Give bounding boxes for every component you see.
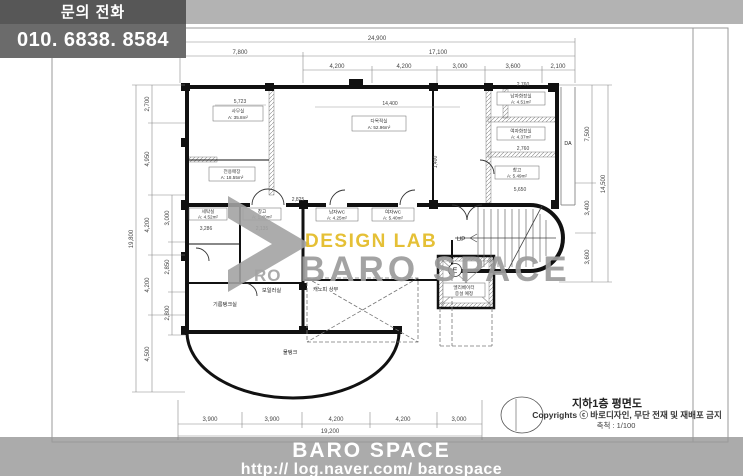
svg-text:2,825: 2,825 [292, 197, 305, 203]
contact-box: 문의 전화 010. 6838. 8584 [0, 0, 186, 58]
svg-text:3,286: 3,286 [200, 226, 213, 232]
oil-tank-label: 기름탱크실 [213, 300, 237, 308]
svg-text:4,200: 4,200 [145, 217, 151, 233]
svg-text:A: 4.25m²: A: 4.25m² [327, 216, 347, 221]
svg-text:4,200: 4,200 [329, 64, 345, 70]
svg-text:7,500: 7,500 [585, 126, 591, 142]
room-label: 남자화장실 A: 4.51m² [497, 92, 545, 105]
svg-text:4,200: 4,200 [145, 277, 151, 293]
up-label: UP [456, 236, 465, 243]
svg-text:24,900: 24,900 [368, 36, 387, 42]
svg-text:1,400: 1,400 [433, 156, 439, 169]
svg-text:5,650: 5,650 [514, 187, 527, 193]
svg-text:A: 5.40m²: A: 5.40m² [383, 216, 403, 221]
room-label: 여자WC A: 5.40m² [372, 208, 414, 221]
blog-image: BARO SPACE http:// log.naver.com/ barosp… [0, 0, 743, 476]
room-label: 세탁실 A: 4.52m² [189, 208, 227, 220]
svg-text:전용매장: 전용매장 [224, 168, 242, 175]
svg-text:3,400: 3,400 [585, 200, 591, 216]
svg-text:19,200: 19,200 [321, 429, 340, 435]
svg-text:A: 4.37m²: A: 4.37m² [511, 135, 531, 140]
svg-text:3,900: 3,900 [202, 417, 218, 423]
watermark-ro: RO [254, 266, 282, 285]
svg-text:5,723: 5,723 [234, 99, 247, 105]
svg-text:다목적실: 다목적실 [371, 118, 388, 125]
svg-text:3,000: 3,000 [165, 210, 171, 226]
svg-text:4,200: 4,200 [396, 64, 412, 70]
svg-text:A: 4.52m²: A: 4.52m² [198, 215, 218, 220]
svg-text:2,100: 2,100 [550, 64, 566, 70]
svg-text:14,500: 14,500 [601, 174, 607, 193]
svg-text:3,000: 3,000 [452, 64, 468, 70]
room-label: 사무실 A: 35.8m² [213, 106, 263, 121]
contact-number: 010. 6838. 8584 [0, 24, 186, 58]
svg-text:2,760: 2,760 [517, 82, 530, 88]
svg-text:A: 18.55m²: A: 18.55m² [221, 175, 244, 180]
svg-text:3,600: 3,600 [505, 64, 521, 70]
svg-text:남자화장실: 남자화장실 [510, 93, 531, 100]
water-tank-label: 물탱크 [283, 349, 298, 356]
scale-text: 축척 : 1/100 [597, 421, 636, 430]
svg-text:여자WC: 여자WC [385, 209, 402, 216]
boiler-label: 보일러실 [262, 286, 281, 294]
title-block: 지하1층 평면도 Copyrights ⓒ 바로디자인, 무단 전재 및 재배포… [501, 396, 722, 433]
watermark-design-lab: DESIGN LAB [305, 231, 437, 252]
svg-text:창고: 창고 [258, 208, 266, 214]
svg-text:2,850: 2,850 [165, 259, 171, 275]
svg-text:4,200: 4,200 [395, 417, 411, 423]
svg-text:창고: 창고 [513, 167, 521, 173]
svg-text:A: 52.96m²: A: 52.96m² [368, 125, 391, 130]
annotations: 기름탱크실 보일러실 물탱크 캐노피 상부 [213, 285, 341, 356]
svg-text:남자WC: 남자WC [329, 209, 346, 216]
svg-text:여자화장실: 여자화장실 [510, 128, 531, 135]
svg-text:A: 5.49m²: A: 5.49m² [507, 174, 527, 179]
svg-text:A: 35.8m²: A: 35.8m² [228, 115, 248, 120]
room-label: 전용매장 A: 18.55m² [209, 167, 255, 181]
svg-text:4,200: 4,200 [328, 417, 344, 423]
watermark-brand: BARO SPACE [300, 250, 571, 289]
drawing-title: 지하1층 평면도 [572, 396, 642, 410]
svg-text:2,760: 2,760 [517, 146, 530, 152]
elevator-note-line2: 증설 예정 [455, 290, 473, 297]
svg-text:2,800: 2,800 [165, 305, 171, 321]
svg-text:3,900: 3,900 [264, 417, 280, 423]
contact-label: 문의 전화 [0, 0, 186, 24]
room-label: 창고 A: 5.49m² [495, 166, 539, 179]
svg-text:4,500: 4,500 [145, 346, 151, 362]
da-strip: DA [561, 87, 575, 205]
floorplan-drawing: E 엘리베이터 증설 예정 DA UP 사무실 A: 35.8m² 다목적실 A… [0, 0, 743, 476]
room-label: 다목적실 A: 52.96m² [352, 116, 406, 131]
copyright-text: Copyrights ⓒ 바로디자인, 무단 전재 및 재배포 금지 [532, 410, 722, 420]
svg-text:14,400: 14,400 [382, 101, 398, 107]
da-label: DA [564, 141, 572, 147]
svg-text:3,600: 3,600 [585, 249, 591, 265]
room-label: 남자WC A: 4.25m² [316, 208, 358, 221]
svg-text:2,700: 2,700 [145, 96, 151, 112]
svg-text:사무실: 사무실 [232, 108, 245, 115]
room-label: 여자화장실 A: 4.37m² [497, 127, 545, 140]
svg-text:19,800: 19,800 [129, 229, 135, 248]
svg-text:4,950: 4,950 [145, 151, 151, 167]
svg-text:3,000: 3,000 [451, 417, 467, 423]
svg-text:A: 4.51m²: A: 4.51m² [511, 100, 531, 105]
svg-text:17,100: 17,100 [429, 50, 448, 56]
svg-text:7,800: 7,800 [232, 50, 248, 56]
